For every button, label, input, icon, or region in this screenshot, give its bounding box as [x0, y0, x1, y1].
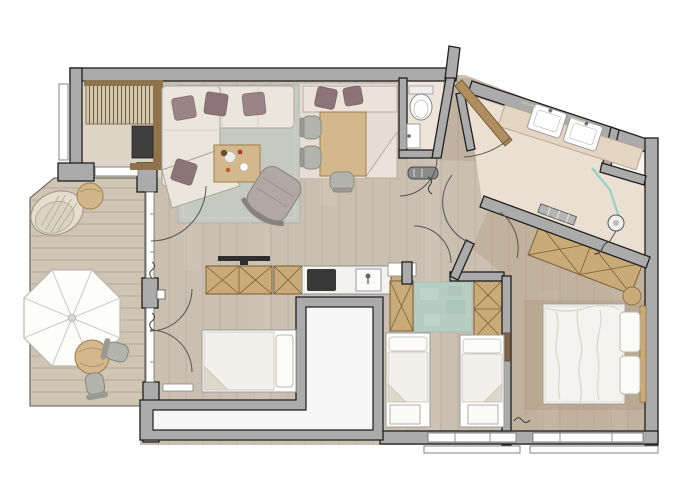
chair-back: [300, 118, 304, 137]
single-bed: [460, 335, 504, 427]
seat-cushion: [343, 86, 364, 107]
nook-bed-pillow: [276, 335, 293, 387]
floor-plan: [0, 0, 700, 500]
chair: [302, 146, 321, 169]
window-sill-outer: [424, 446, 520, 453]
wall-right: [645, 138, 658, 445]
dark-wall-panel: [132, 126, 153, 158]
bed-pillow: [620, 356, 640, 394]
terrace-door-handle: [157, 290, 165, 299]
pillow: [171, 95, 196, 120]
headboard: [640, 306, 646, 402]
wall-kitchen-end: [402, 262, 412, 284]
wc-faucet: [407, 134, 411, 138]
decor-red: [226, 168, 230, 172]
window-band: [146, 192, 154, 278]
wall-pier: [58, 163, 94, 181]
tv-stand: [240, 261, 248, 265]
wood-trim: [84, 80, 162, 86]
wall-wc-left: [399, 78, 407, 158]
window-band: [146, 308, 154, 382]
terrace-door-block: [142, 278, 158, 308]
decor-red: [238, 150, 243, 155]
window-sill-outer: [530, 446, 658, 453]
chair-back: [333, 188, 352, 192]
door-threshold: [163, 384, 193, 391]
chair-back: [300, 148, 304, 167]
pillow: [242, 92, 266, 116]
toilet: [410, 94, 432, 120]
dining-table: [320, 112, 366, 176]
single-bed: [386, 333, 430, 427]
wardrobe-striped: [86, 84, 156, 124]
tv-screen: [218, 256, 270, 261]
wall: [70, 68, 455, 81]
side-table: [77, 183, 103, 209]
bed-pillow: [620, 312, 640, 352]
decor-vase: [221, 150, 227, 156]
coffee-table: [214, 145, 260, 182]
round-stool: [623, 287, 641, 305]
cup: [240, 163, 248, 171]
toilet-tank: [409, 86, 433, 94]
pillow: [204, 92, 229, 117]
cooktop: [307, 269, 336, 291]
shower-head-center: [613, 220, 619, 226]
window-band: [428, 433, 516, 442]
wall: [70, 68, 82, 168]
window-band: [533, 433, 643, 442]
parasol-pole: [69, 315, 76, 322]
seat-cushion: [314, 86, 338, 110]
chair: [302, 116, 321, 139]
wood-trim: [130, 163, 163, 170]
floor-plan-page: [0, 0, 700, 500]
window-sill-outer: [59, 84, 68, 160]
wardrobe: [474, 281, 502, 338]
